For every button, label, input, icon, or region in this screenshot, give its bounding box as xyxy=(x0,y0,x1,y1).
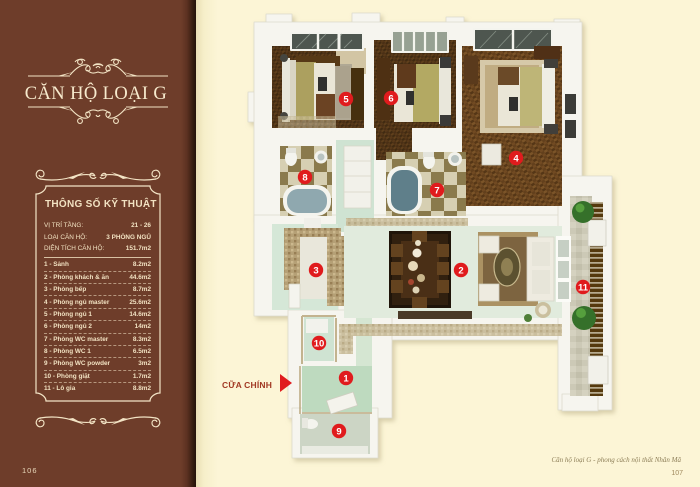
svg-text:6: 6 xyxy=(388,94,393,105)
svg-text:4: 4 xyxy=(513,154,519,165)
svg-text:11: 11 xyxy=(578,283,589,294)
svg-text:2: 2 xyxy=(458,266,463,277)
svg-text:10: 10 xyxy=(314,339,325,350)
svg-text:1: 1 xyxy=(343,374,349,385)
svg-text:8: 8 xyxy=(302,173,307,184)
svg-text:5: 5 xyxy=(343,95,349,106)
svg-text:7: 7 xyxy=(434,186,439,197)
svg-text:3: 3 xyxy=(313,266,318,277)
svg-text:9: 9 xyxy=(336,427,341,438)
